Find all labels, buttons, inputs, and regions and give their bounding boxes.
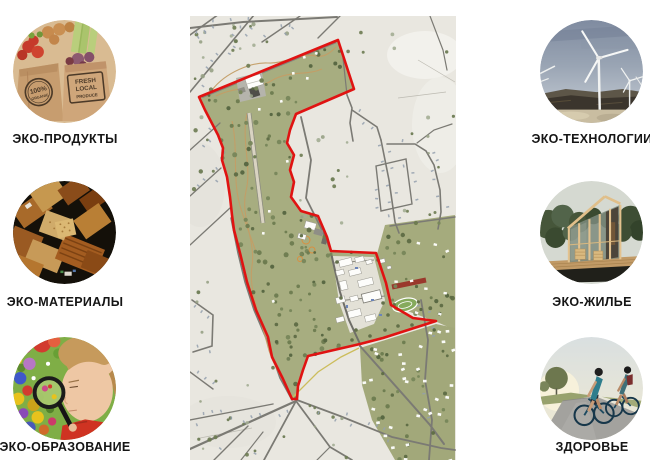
eco-house-illustration <box>540 181 643 284</box>
category-label-eco-housing: ЭКО-ЖИЛЬЕ <box>507 295 650 309</box>
category-image-eco-products: 100% ORGANIC FRESH LOCAL PRODUCE <box>13 20 116 123</box>
category-label-health: ЗДОРОВЬЕ <box>507 440 650 454</box>
category-label-eco-education: ЭКО-ОБРАЗОВАНИЕ <box>0 440 150 454</box>
category-image-health <box>540 337 643 440</box>
site-plan-svg <box>190 16 456 460</box>
category-label-eco-products: ЭКО-ПРОДУКТЫ <box>0 132 150 146</box>
cyclists-illustration <box>540 337 643 440</box>
wind-turbines-illustration <box>540 20 643 123</box>
eco-infographic: 100% ORGANIC FRESH LOCAL PRODUCE ЭКО-ПРО… <box>0 0 650 460</box>
child-magnifier-illustration <box>13 337 116 440</box>
produce-bags-illustration: 100% ORGANIC FRESH LOCAL PRODUCE <box>13 20 116 123</box>
category-image-eco-housing <box>540 181 643 284</box>
category-image-eco-education <box>13 337 116 440</box>
category-label-eco-technology: ЭКО-ТЕХНОЛОГИИ <box>507 132 650 146</box>
wood-samples-illustration <box>13 181 116 284</box>
site-plan-map <box>190 16 456 460</box>
category-label-eco-materials: ЭКО-МАТЕРИАЛЫ <box>0 295 150 309</box>
category-image-eco-materials <box>13 181 116 284</box>
category-image-eco-technology <box>540 20 643 123</box>
